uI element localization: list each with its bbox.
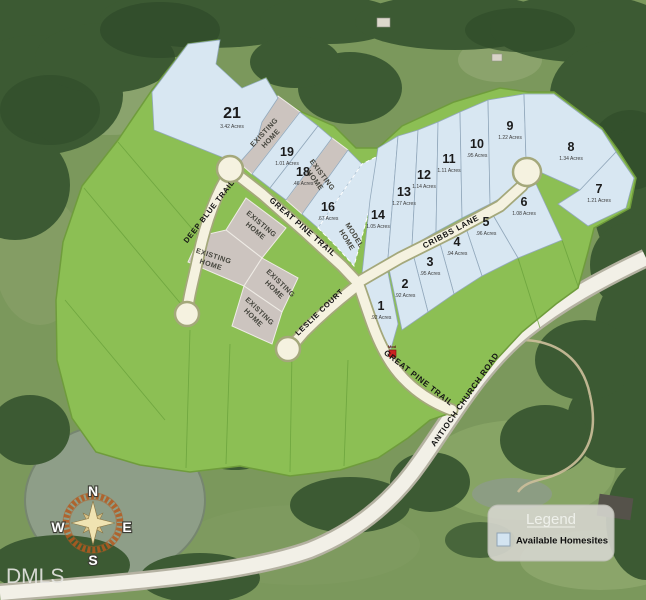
plat-map: Mod 1.92 Acres 2.92 Acres 3.95 Acres 4.9…	[0, 0, 646, 600]
lot-13-number: 13	[397, 185, 411, 199]
lot-10-acreage: .95 Acres	[467, 153, 488, 159]
house-top-right	[492, 54, 502, 61]
legend-swatch-available	[497, 533, 510, 546]
legend-item-label: Available Homesites	[516, 536, 608, 547]
lot-6-acreage: 1.08 Acres	[512, 211, 536, 217]
lot-10-number: 10	[470, 137, 484, 151]
lot-5-acreage: .96 Acres	[476, 231, 497, 237]
compass-north: N	[88, 483, 98, 499]
lot-11-acreage: 1.11 Acres	[437, 168, 461, 174]
lot-19-acreage: 1.01 Acres	[275, 161, 299, 167]
plat-map-canvas: Mod 1.92 Acres 2.92 Acres 3.95 Acres 4.9…	[0, 0, 646, 600]
compass-east: E	[122, 519, 131, 535]
lot-9-acreage: 1.22 Acres	[498, 135, 522, 141]
lot-18-acreage: .46 Acres	[293, 181, 314, 187]
lot-19-number: 19	[280, 145, 294, 159]
lot-6-number: 6	[521, 195, 528, 209]
lot-21-acreage: 3.42 Acres	[220, 124, 244, 130]
lot-7-acreage: 1.21 Acres	[587, 198, 611, 204]
compass-south: S	[88, 552, 97, 568]
lot-14-acreage: 1.05 Acres	[366, 224, 390, 230]
watermark-dmls: DMLS	[6, 565, 64, 588]
lot-12-acreage: 1.14 Acres	[412, 184, 436, 190]
compass-west: W	[51, 519, 65, 535]
cul-de-sac-great-pine	[217, 156, 243, 182]
lot-9-number: 9	[507, 119, 514, 133]
lot-16-acreage: .67 Acres	[318, 216, 339, 222]
house-top-middle	[377, 18, 390, 27]
lot-8-acreage: 1.34 Acres	[559, 156, 583, 162]
lot-1-acreage: .92 Acres	[371, 315, 392, 321]
lot-16-number: 16	[321, 200, 335, 214]
lot-7-number: 7	[596, 182, 603, 196]
cul-de-sac-cribbs	[513, 158, 541, 186]
lot-2-number: 2	[402, 277, 409, 291]
lot-3-number: 3	[427, 255, 434, 269]
lot-13-acreage: 1.27 Acres	[392, 201, 416, 207]
lot-4-number: 4	[454, 235, 461, 249]
lot-12-number: 12	[417, 168, 431, 182]
lot-8-number: 8	[568, 140, 575, 154]
lot-10-region[interactable]	[460, 100, 490, 218]
cul-de-sac-deep-blue	[175, 302, 199, 326]
lot-1-number: 1	[378, 299, 385, 313]
cul-de-sac-leslie	[276, 337, 300, 361]
lot-5-number: 5	[483, 215, 490, 229]
lot-11-number: 11	[442, 152, 455, 166]
legend-title: Legend	[526, 511, 576, 528]
lot-3-acreage: .95 Acres	[420, 271, 441, 277]
lot-4-acreage: .94 Acres	[447, 251, 468, 257]
lot-2-acreage: .92 Acres	[395, 293, 416, 299]
legend-box: Legend Available Homesites	[488, 505, 614, 561]
lot-21-number: 21	[223, 105, 241, 122]
lot-14-number: 14	[371, 208, 385, 222]
